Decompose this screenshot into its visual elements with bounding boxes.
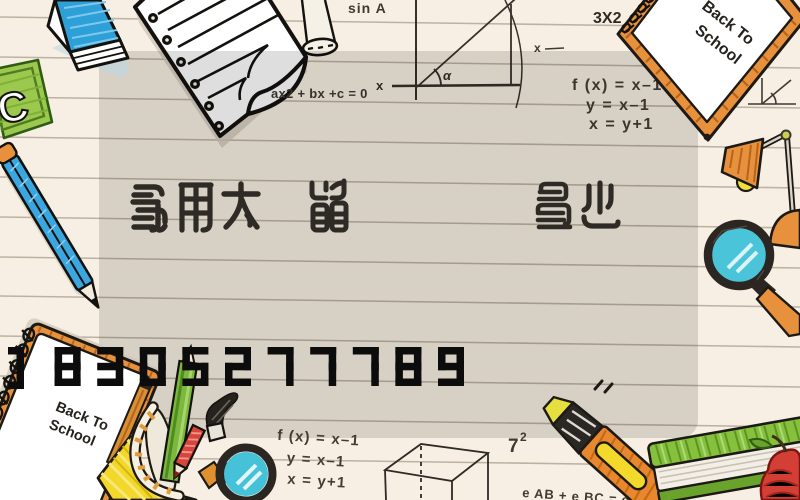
svg-text:sin A: sin A [348,0,387,16]
svg-text:3X2: 3X2 [593,10,622,27]
svg-text:7: 7 [508,436,519,457]
svg-text:2: 2 [520,430,527,444]
